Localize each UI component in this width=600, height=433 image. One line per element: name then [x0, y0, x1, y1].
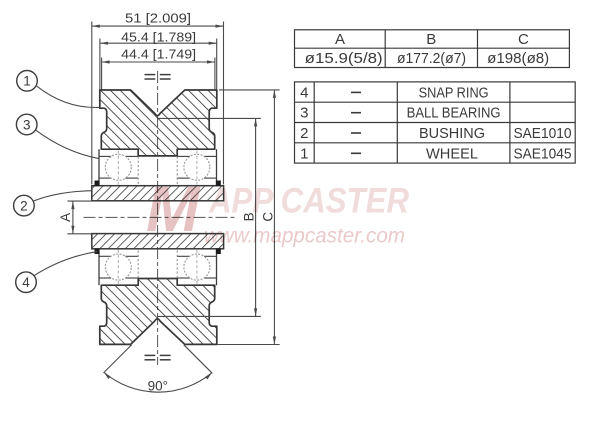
svg-text:2: 2 [20, 198, 28, 213]
svg-text:3: 3 [23, 117, 31, 132]
svg-text:3: 3 [300, 105, 308, 122]
svg-text:ø15.9(5/8): ø15.9(5/8) [305, 50, 383, 67]
svg-text:51 [2.009]: 51 [2.009] [125, 11, 191, 25]
svg-text:1: 1 [300, 145, 308, 162]
svg-text:90°: 90° [148, 379, 168, 394]
svg-text:M: M [146, 173, 201, 245]
svg-text:C: C [518, 31, 529, 48]
svg-text:BALL BEARING: BALL BEARING [407, 105, 501, 122]
svg-text:SNAP RING: SNAP RING [419, 84, 489, 101]
svg-text:44.4 [1.749]: 44.4 [1.749] [121, 48, 196, 62]
svg-text:SAE1010: SAE1010 [514, 125, 572, 142]
svg-text:4: 4 [22, 275, 30, 290]
svg-text:www.mappcaster.com: www.mappcaster.com [204, 225, 405, 248]
svg-text:2: 2 [300, 125, 308, 142]
svg-text:ø198(ø8): ø198(ø8) [487, 50, 549, 67]
svg-text:A: A [335, 31, 345, 48]
svg-text:BUSHING: BUSHING [419, 125, 485, 142]
svg-text:1: 1 [23, 74, 31, 89]
svg-text:4: 4 [300, 84, 308, 101]
svg-text:SAE1045: SAE1045 [514, 145, 572, 162]
svg-text:B: B [426, 31, 436, 48]
svg-text:A: A [58, 213, 73, 222]
svg-text:APP CASTER: APP CASTER [208, 181, 409, 221]
svg-text:45.4 [1.789]: 45.4 [1.789] [121, 30, 196, 44]
svg-text:WHEEL: WHEEL [426, 145, 478, 162]
svg-text:ø177.2(ø7): ø177.2(ø7) [397, 50, 466, 67]
